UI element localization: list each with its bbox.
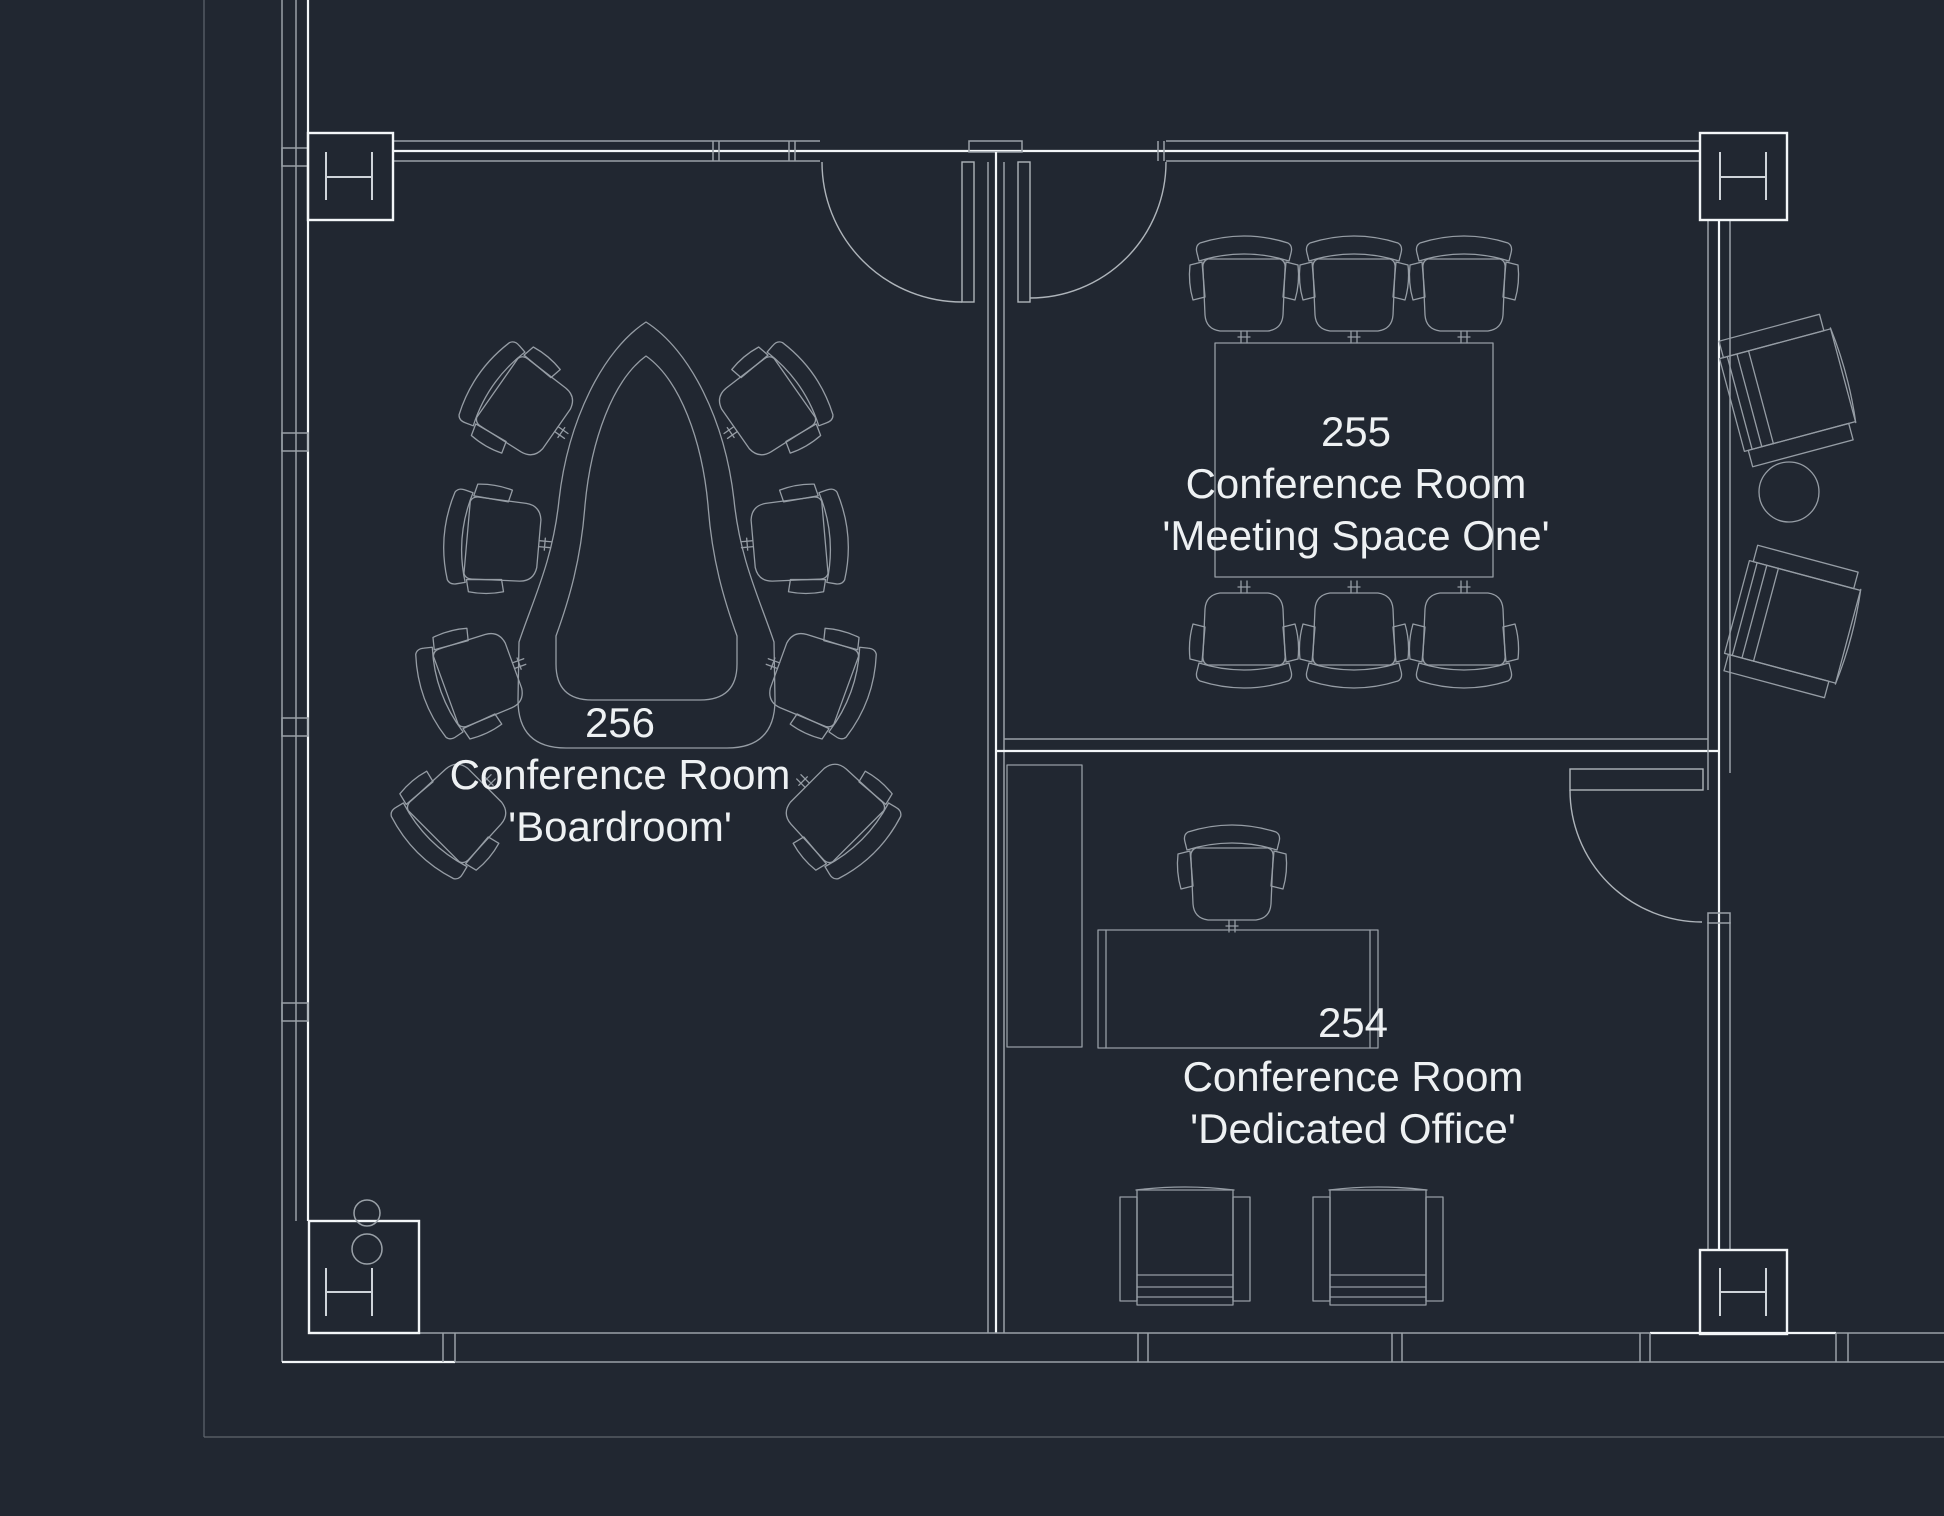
round-side-table[interactable]: [1759, 462, 1819, 522]
floorplan-svg: 256 Conference Room 'Boardroom' 255 Conf…: [0, 0, 1944, 1516]
corner-detail-circle: [352, 1234, 382, 1264]
cad-canvas: 256 Conference Room 'Boardroom' 255 Conf…: [0, 0, 1944, 1516]
wall-bottom-exterior[interactable]: [282, 1333, 1944, 1362]
column-marker-top-left[interactable]: [308, 133, 393, 220]
mullion: [282, 433, 308, 451]
mullion: [282, 148, 308, 166]
office-chair[interactable]: [694, 330, 844, 481]
horseshoe-conference-table[interactable]: [518, 322, 775, 748]
room-type: Conference Room: [1183, 1053, 1524, 1100]
mullion: [282, 1003, 308, 1021]
guest-chair[interactable]: [1313, 1187, 1443, 1305]
office-chair[interactable]: [1189, 581, 1298, 688]
guest-chair[interactable]: [1120, 1187, 1250, 1305]
room-number: 255: [1321, 408, 1391, 455]
office-chair[interactable]: [439, 481, 555, 599]
office-chair[interactable]: [1299, 581, 1408, 688]
office-chair[interactable]: [736, 481, 852, 599]
office-chair[interactable]: [1189, 236, 1298, 343]
wall-interior-vertical[interactable]: [988, 152, 1004, 1333]
wall-joint-ticks: [443, 1333, 1848, 1362]
room-alias: 'Dedicated Office': [1190, 1105, 1516, 1152]
door-leaf: [962, 162, 974, 302]
site-boundary-lines[interactable]: [204, 0, 1944, 1437]
office-chair[interactable]: [447, 330, 597, 481]
room-alias: 'Meeting Space One': [1162, 512, 1549, 559]
room-254-label[interactable]: 254 Conference Room 'Dedicated Office': [1183, 999, 1524, 1152]
wall-interior-horizontal[interactable]: [996, 739, 1719, 751]
door-room-254[interactable]: [1570, 769, 1703, 922]
office-chair[interactable]: [1177, 825, 1286, 932]
door-room-255[interactable]: [1018, 162, 1166, 302]
wall-right-exterior[interactable]: [1708, 220, 1730, 1250]
door-swing-arc: [1030, 162, 1166, 298]
column-marker-bottom-right[interactable]: [1700, 1250, 1787, 1334]
room-type: Conference Room: [1186, 460, 1527, 507]
room-number: 254: [1318, 999, 1388, 1046]
column-marker-bottom-left[interactable]: [309, 1200, 419, 1333]
office-chair[interactable]: [1299, 236, 1408, 343]
lounge-armchair[interactable]: [1720, 544, 1868, 700]
wall-top-exterior[interactable]: [393, 141, 1700, 161]
wall-left-exterior[interactable]: [282, 0, 308, 1362]
door-leaf: [1018, 162, 1030, 302]
room-type: Conference Room: [450, 751, 791, 798]
room-number: 256: [585, 699, 655, 746]
lounge-armchair[interactable]: [1715, 312, 1863, 468]
lounge-area-furniture: [1715, 312, 1868, 701]
side-cabinet[interactable]: [1007, 765, 1082, 1047]
door-swing-arc: [1570, 790, 1702, 922]
column-marker-top-right[interactable]: [1700, 133, 1787, 220]
office-chair[interactable]: [1409, 581, 1518, 688]
room-255-label[interactable]: 255 Conference Room 'Meeting Space One': [1162, 408, 1549, 559]
door-room-256[interactable]: [822, 162, 974, 302]
mullion: [282, 718, 308, 736]
room-alias: 'Boardroom': [508, 803, 732, 850]
door-leaf: [1570, 769, 1703, 790]
office-chair[interactable]: [1409, 236, 1518, 343]
door-swing-arc: [822, 162, 962, 302]
